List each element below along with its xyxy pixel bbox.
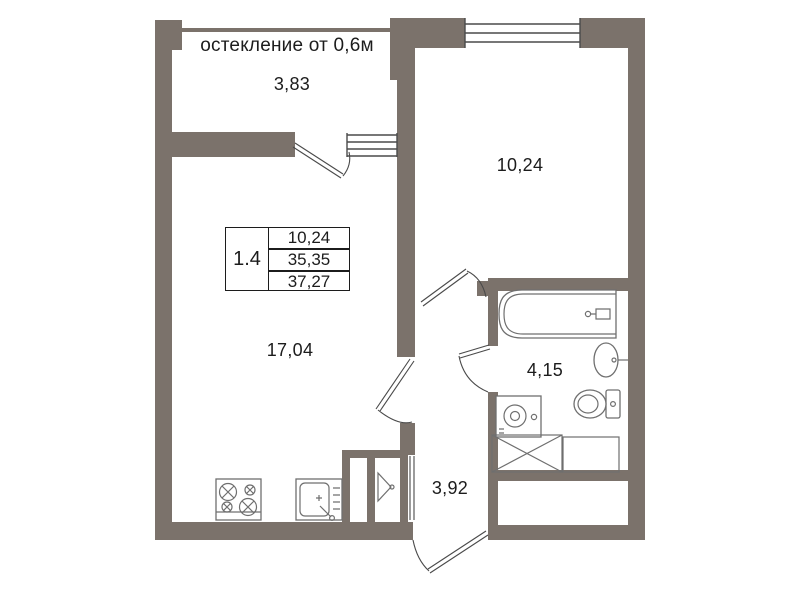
washing-machine <box>496 396 541 437</box>
living-space-value: 35,35 <box>269 248 349 272</box>
bathroom-area-label: 4,15 <box>505 360 585 381</box>
apartment-areas: 10,24 35,35 37,27 <box>269 228 349 290</box>
balcony-door <box>293 143 350 178</box>
bathtub <box>499 290 616 338</box>
bedroom-area-label: 10,24 <box>470 155 570 176</box>
total-area-value: 37,27 <box>269 272 349 292</box>
glazing-label: остекление от 0,6м <box>180 35 394 57</box>
bedroom-window <box>465 18 580 48</box>
kitchen-sink <box>296 479 342 520</box>
entrance-door <box>413 531 488 573</box>
hallway-area-label: 3,92 <box>410 478 490 499</box>
bedroom-door <box>421 269 486 306</box>
stove <box>216 479 261 520</box>
floor-plan: остекление от 0,6м 3,83 10,24 17,04 4,15… <box>0 0 799 600</box>
living-room-area-label: 17,04 <box>240 340 340 361</box>
duct-marker <box>378 473 394 501</box>
wardrobe <box>492 435 562 472</box>
apartment-unit-number: 1.4 <box>226 228 269 290</box>
floor-plan-drawing <box>0 0 799 600</box>
bathroom-door <box>459 345 490 392</box>
storage-niche <box>563 437 619 472</box>
living-room-window <box>347 133 397 157</box>
apartment-info-table: 1.4 10,24 35,35 37,27 <box>225 227 350 291</box>
balcony-area-label: 3,83 <box>242 74 342 95</box>
toilet <box>574 390 620 418</box>
living-room-door <box>376 359 414 423</box>
bathroom-sink <box>594 343 628 377</box>
room-area-value: 10,24 <box>269 228 349 248</box>
